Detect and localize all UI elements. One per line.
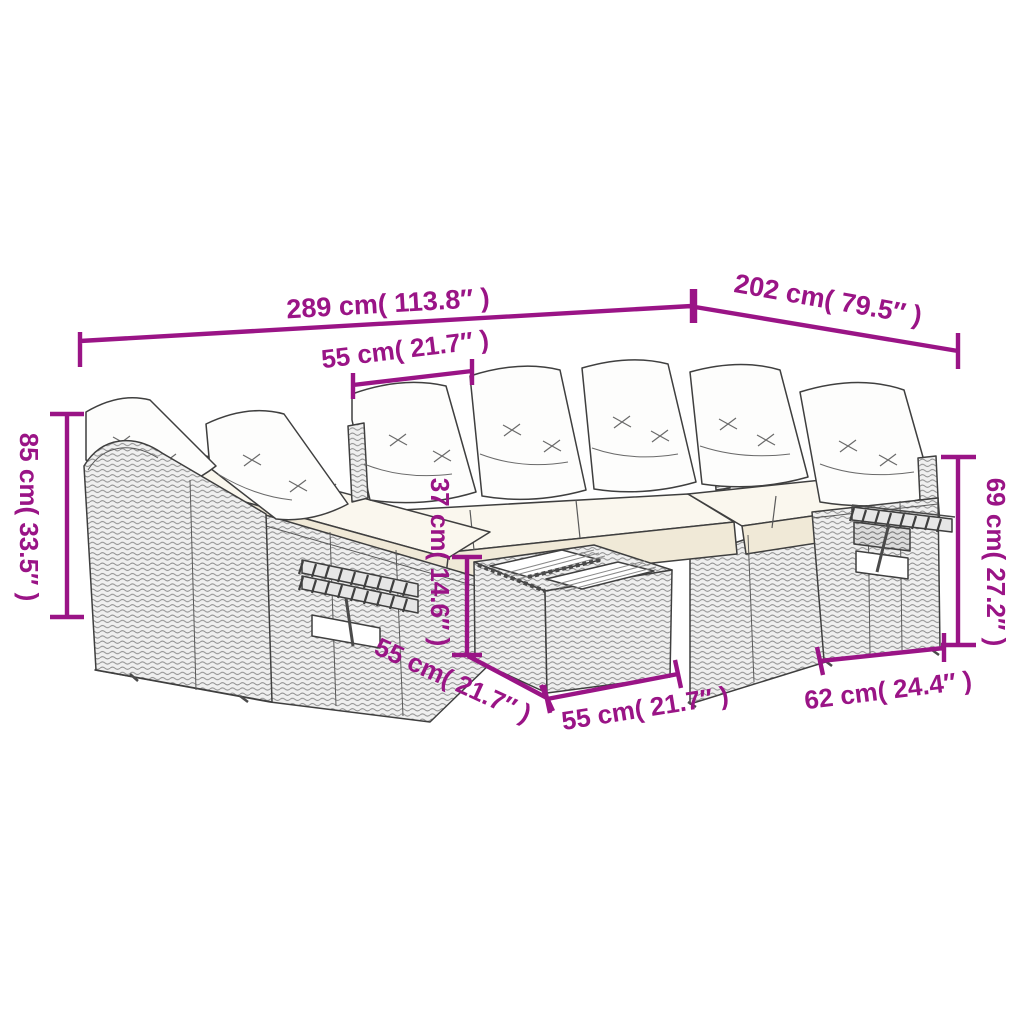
back-post [348, 423, 368, 502]
sofa-line-art [84, 360, 955, 722]
corner-post [918, 456, 938, 500]
dim-label-table-height: 37 cm( 14.6″ ) [427, 478, 453, 647]
dim-line-total-height [50, 414, 84, 617]
coffee-table [474, 545, 672, 693]
dimension-diagram: 289 cm( 113.8″ ) 202 cm( 79.5″ ) 55 cm( … [0, 0, 1024, 1024]
furniture-line-art [0, 0, 1024, 1024]
dim-label-total-height: 85 cm( 33.5″ ) [16, 433, 42, 602]
dim-label-armrest-height: 69 cm( 27.2″ ) [983, 478, 1009, 647]
dim-line-armrest-height [941, 457, 976, 645]
